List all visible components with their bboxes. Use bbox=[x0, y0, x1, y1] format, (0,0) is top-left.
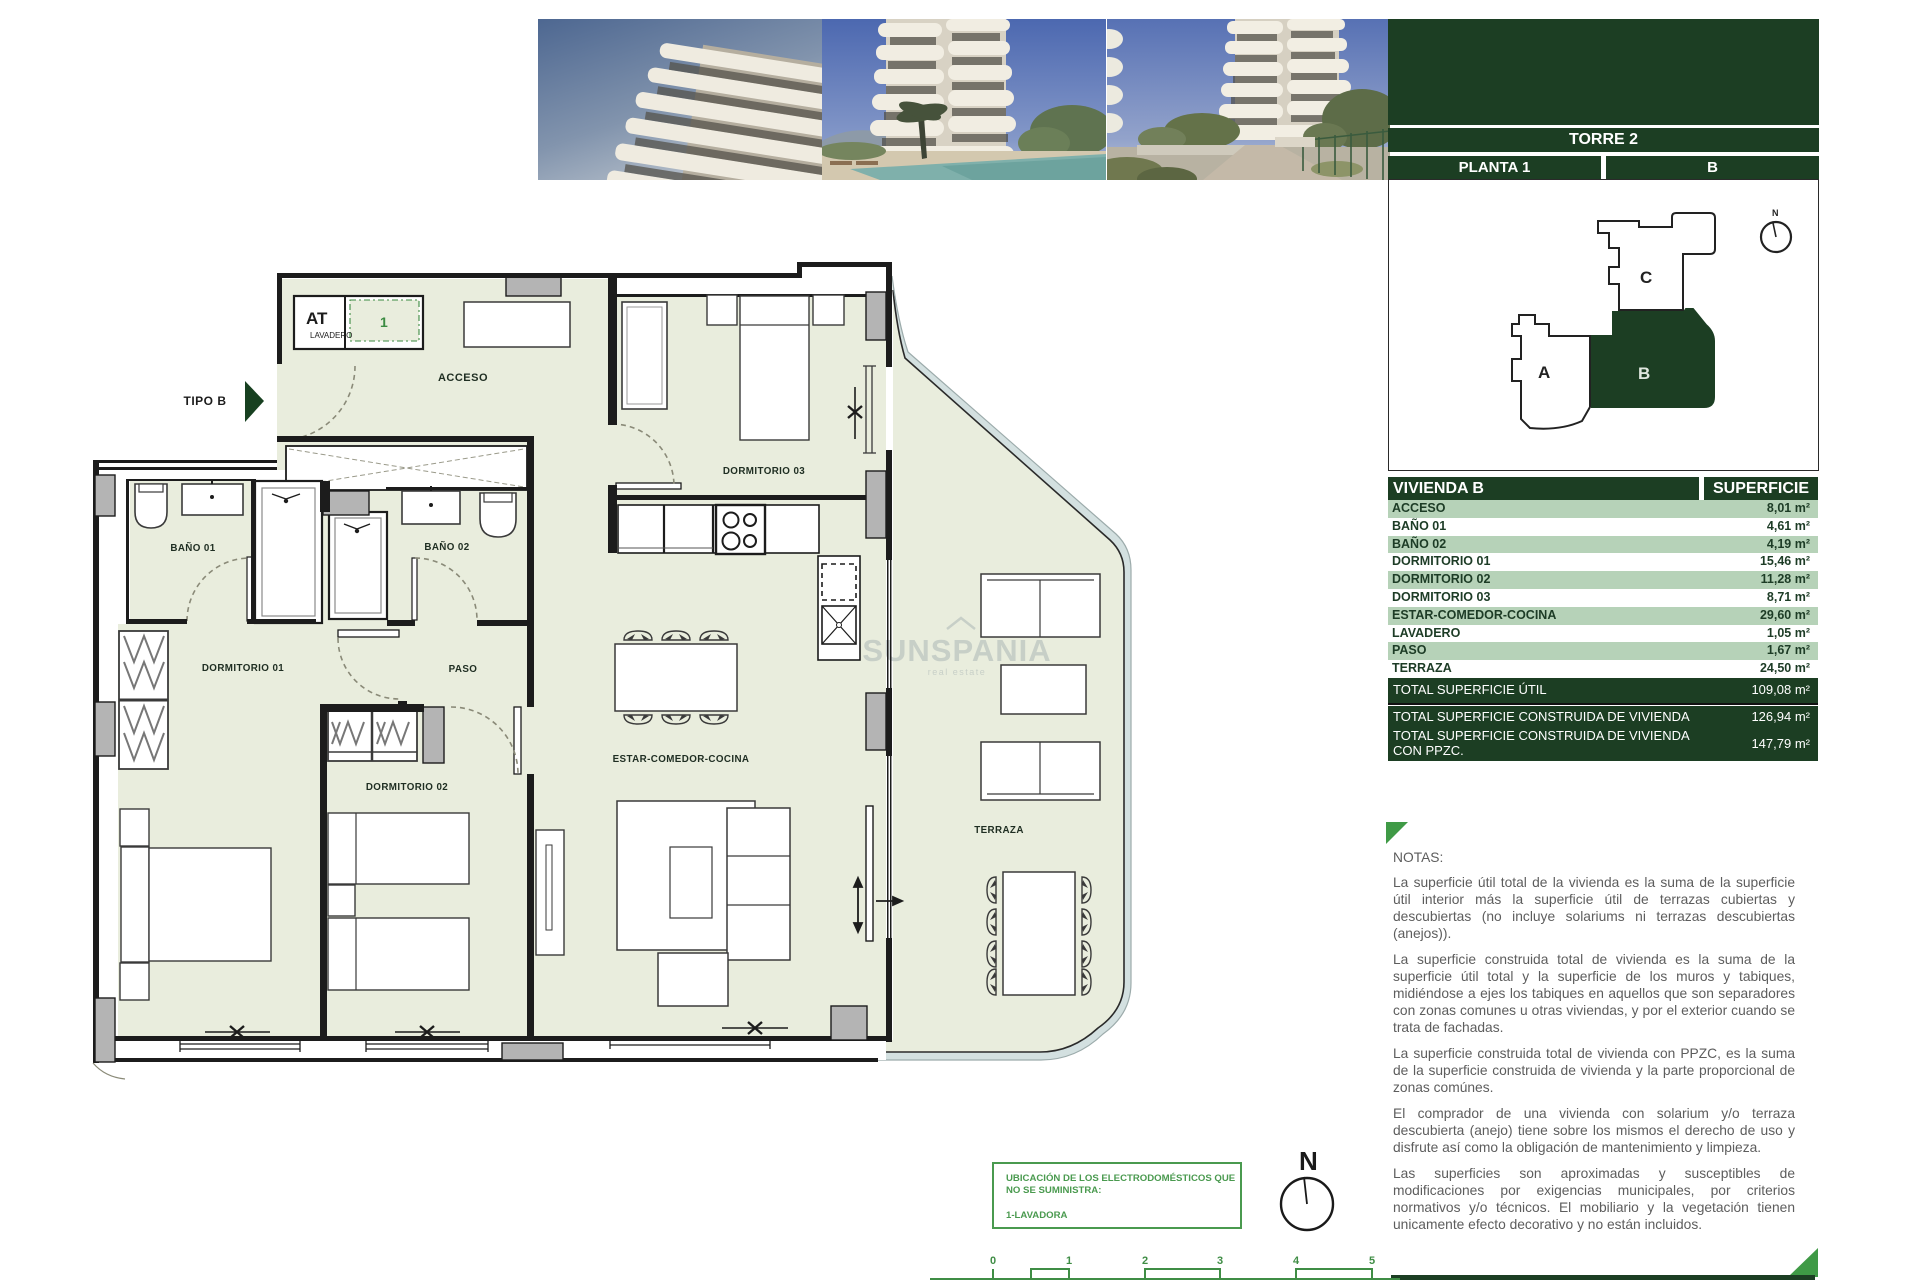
svg-text:TIPO B: TIPO B bbox=[183, 394, 226, 408]
svg-text:0: 0 bbox=[990, 1255, 996, 1267]
svg-text:AT: AT bbox=[306, 309, 328, 328]
svg-text:N: N bbox=[1772, 208, 1779, 218]
svg-text:real estate: real estate bbox=[928, 667, 987, 677]
svg-text:ACCESO: ACCESO bbox=[438, 372, 488, 384]
svg-text:3: 3 bbox=[1217, 1255, 1223, 1267]
svg-text:DORMITORIO 01: DORMITORIO 01 bbox=[202, 663, 284, 674]
svg-text:1: 1 bbox=[380, 314, 388, 330]
svg-text:PASO: PASO bbox=[449, 664, 478, 675]
svg-text:BAÑO 02: BAÑO 02 bbox=[424, 542, 469, 553]
svg-text:TERRAZA: TERRAZA bbox=[974, 825, 1024, 836]
svg-text:DORMITORIO 02: DORMITORIO 02 bbox=[366, 782, 448, 793]
svg-text:LAVADERO: LAVADERO bbox=[310, 331, 352, 340]
svg-text:ESTAR-COMEDOR-COCINA: ESTAR-COMEDOR-COCINA bbox=[613, 754, 750, 765]
svg-text:4: 4 bbox=[1293, 1255, 1300, 1267]
svg-text:BAÑO 01: BAÑO 01 bbox=[170, 543, 215, 554]
svg-text:DORMITORIO 03: DORMITORIO 03 bbox=[723, 466, 805, 477]
svg-text:C: C bbox=[1640, 268, 1652, 287]
svg-text:1: 1 bbox=[1066, 1255, 1072, 1267]
svg-text:2: 2 bbox=[1142, 1255, 1148, 1267]
svg-text:N: N bbox=[1299, 1146, 1318, 1176]
svg-text:B: B bbox=[1638, 364, 1650, 383]
svg-text:A: A bbox=[1538, 363, 1550, 382]
svg-text:5: 5 bbox=[1369, 1255, 1375, 1267]
